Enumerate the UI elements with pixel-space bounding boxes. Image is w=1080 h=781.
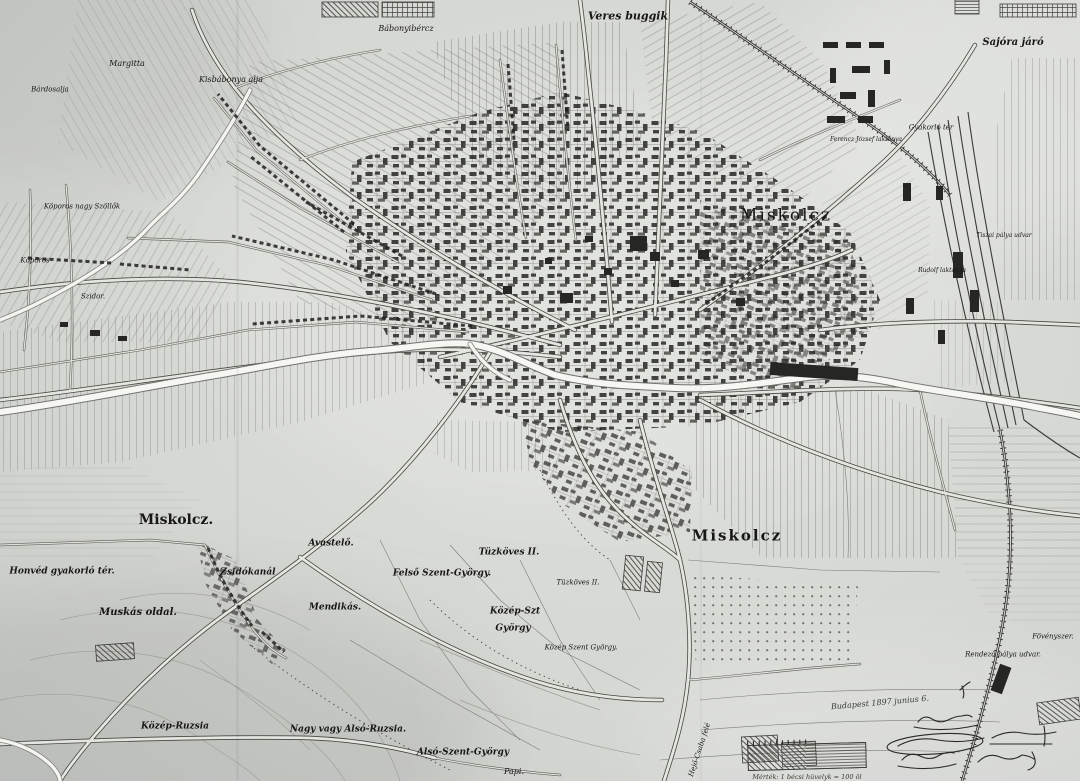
- map-label: Közép Szent György.: [545, 645, 618, 652]
- map-label: Rendező pálya udvar.: [965, 652, 1041, 659]
- map-label: Ferencz József laktanya: [830, 137, 902, 143]
- map-artwork: [0, 0, 1080, 781]
- map-label: Mendikás.: [309, 604, 361, 613]
- map-label: Zsidókanál: [220, 569, 275, 578]
- map-label: Fövényszer.: [1032, 634, 1073, 641]
- map-label: Muskás oldal.: [99, 608, 177, 618]
- map-label: Közép-Ruzsia: [141, 723, 209, 732]
- map-label: Kőporos: [20, 258, 49, 265]
- map-label: György: [495, 625, 530, 634]
- map-label: Felső Szent-György.: [393, 570, 491, 579]
- map-label: Közép-Szt: [490, 608, 540, 617]
- map-label: Margitta: [109, 60, 145, 68]
- map-label: Bárdosalja: [31, 87, 69, 94]
- map-label: Rudolf laktanya: [918, 268, 966, 274]
- map-label: Tiszai pálya udvar: [976, 233, 1031, 239]
- map-label: Mérték: 1 bécsi hüvelyk = 100 öl: [752, 774, 861, 781]
- map-label: Avastelő.: [308, 540, 353, 549]
- map-label: Papi.: [504, 768, 524, 776]
- map-label: Sajóra járó: [982, 38, 1043, 48]
- map-label: Gyakorló tér: [909, 125, 954, 132]
- map-label: Köporos nagy Szöllők: [44, 204, 120, 211]
- map-label: Bábonyibércz: [378, 25, 433, 33]
- map-label: Tüzköves II.: [557, 580, 600, 587]
- map-label: Szidor.: [81, 294, 105, 301]
- map-label: Miskolcz.: [139, 513, 213, 527]
- map-canvas: Veres buggikSajóra járóBábonyibérczMargi…: [0, 0, 1080, 781]
- map-label: Miskolcz: [692, 529, 783, 544]
- map-label: Nagy vagy Alsó-Ruzsia.: [290, 726, 406, 735]
- map-label: Veres buggik: [588, 11, 668, 22]
- map-label: Alsó-Szent-György: [417, 749, 509, 758]
- map-label: Miskolcz: [740, 208, 832, 225]
- map-label: Tüzköves II.: [479, 549, 539, 558]
- map-label: Honvéd gyakorló tér.: [9, 568, 114, 577]
- map-label: Kisbábonya alja: [199, 76, 263, 84]
